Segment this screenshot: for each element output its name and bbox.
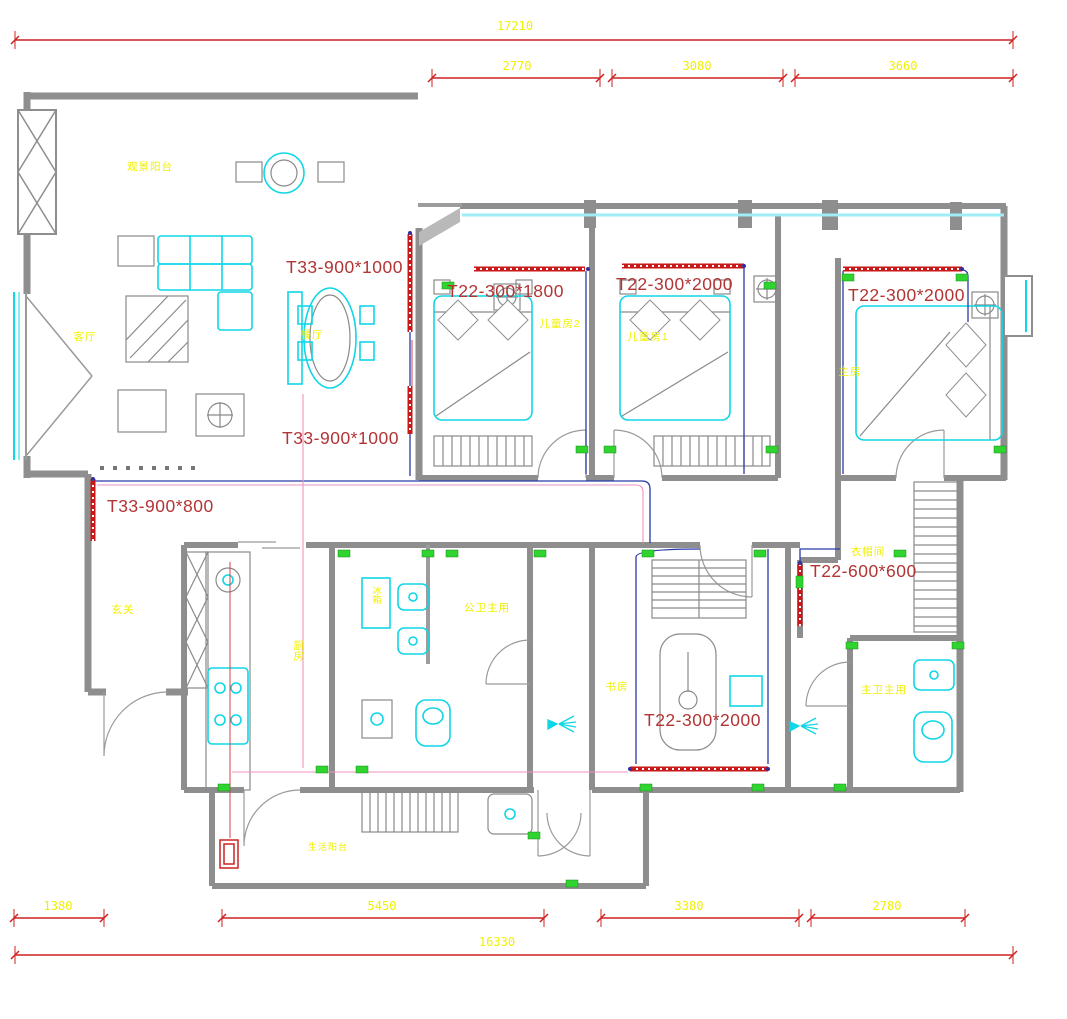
room-label-study: 书房 (606, 682, 629, 693)
room-label-living: 客厅 (74, 332, 97, 343)
bay-window (14, 292, 92, 460)
master-window (1004, 276, 1032, 336)
annotation-bed1-strip: T22-300*2000 (616, 276, 733, 294)
annotation-bed2-strip: T22-300*1800 (447, 283, 564, 301)
dim-top-seg1: 2770 (503, 60, 532, 72)
wall-partition (418, 205, 462, 664)
room-label-master-bed: 主房 (839, 367, 862, 378)
wall-chamfer (419, 208, 460, 246)
room-label-entry: 玄关 (112, 605, 135, 616)
dim-bottom-seg3: 3380 (675, 900, 704, 912)
room-label-service-balcony: 生活阳台 (308, 843, 348, 852)
room-label-kids-bed-2: 儿童房2 (539, 319, 580, 330)
room-label-dining: 餐厅 (301, 330, 324, 341)
dim-bottom-seg1: 1380 (44, 900, 73, 912)
wiring-pink (97, 394, 643, 772)
electrical-panel (220, 840, 238, 868)
furniture-cyan (158, 153, 1002, 819)
room-label-kids-bed-1: 儿童房1 (627, 332, 668, 343)
annotation-dining-strip: T33-900*1000 (286, 259, 403, 277)
vent-squares (100, 466, 195, 470)
walls (24, 92, 1004, 792)
wiring-red (230, 340, 412, 838)
dim-bottom-seg4: 2780 (873, 900, 902, 912)
annotation-hall-strip: T33-900*1000 (282, 430, 399, 448)
dim-bottom-total: 16330 (479, 936, 515, 948)
annotation-study-strip: T22-300*2000 (644, 712, 761, 730)
room-label-fridge: 冰箱 (372, 586, 381, 604)
room-label-cloakroom: 衣帽间 (851, 547, 886, 558)
dim-top-total: 17210 (497, 20, 533, 32)
floorplan-page: 17210 2770 3080 3660 1380 5450 3380 2780… (0, 0, 1067, 1019)
room-label-view-balcony: 观景阳台 (127, 162, 173, 173)
column-hatch (18, 110, 56, 234)
dim-top-seg3: 3660 (889, 60, 918, 72)
dim-top-seg2: 3080 (683, 60, 712, 72)
annotation-closet-strip: T22-600*600 (810, 563, 917, 581)
furniture-gray (118, 160, 998, 834)
room-label-kitchen: 厨房 (293, 640, 304, 661)
annotation-entry-strip: T33-900*800 (107, 498, 214, 516)
room-label-master-bath: 主卫主用 (861, 685, 907, 696)
room-label-public-bath: 公卫主用 (464, 603, 510, 614)
dim-bottom-seg2: 5450 (368, 900, 397, 912)
annotation-master-strip: T22-300*2000 (848, 287, 965, 305)
